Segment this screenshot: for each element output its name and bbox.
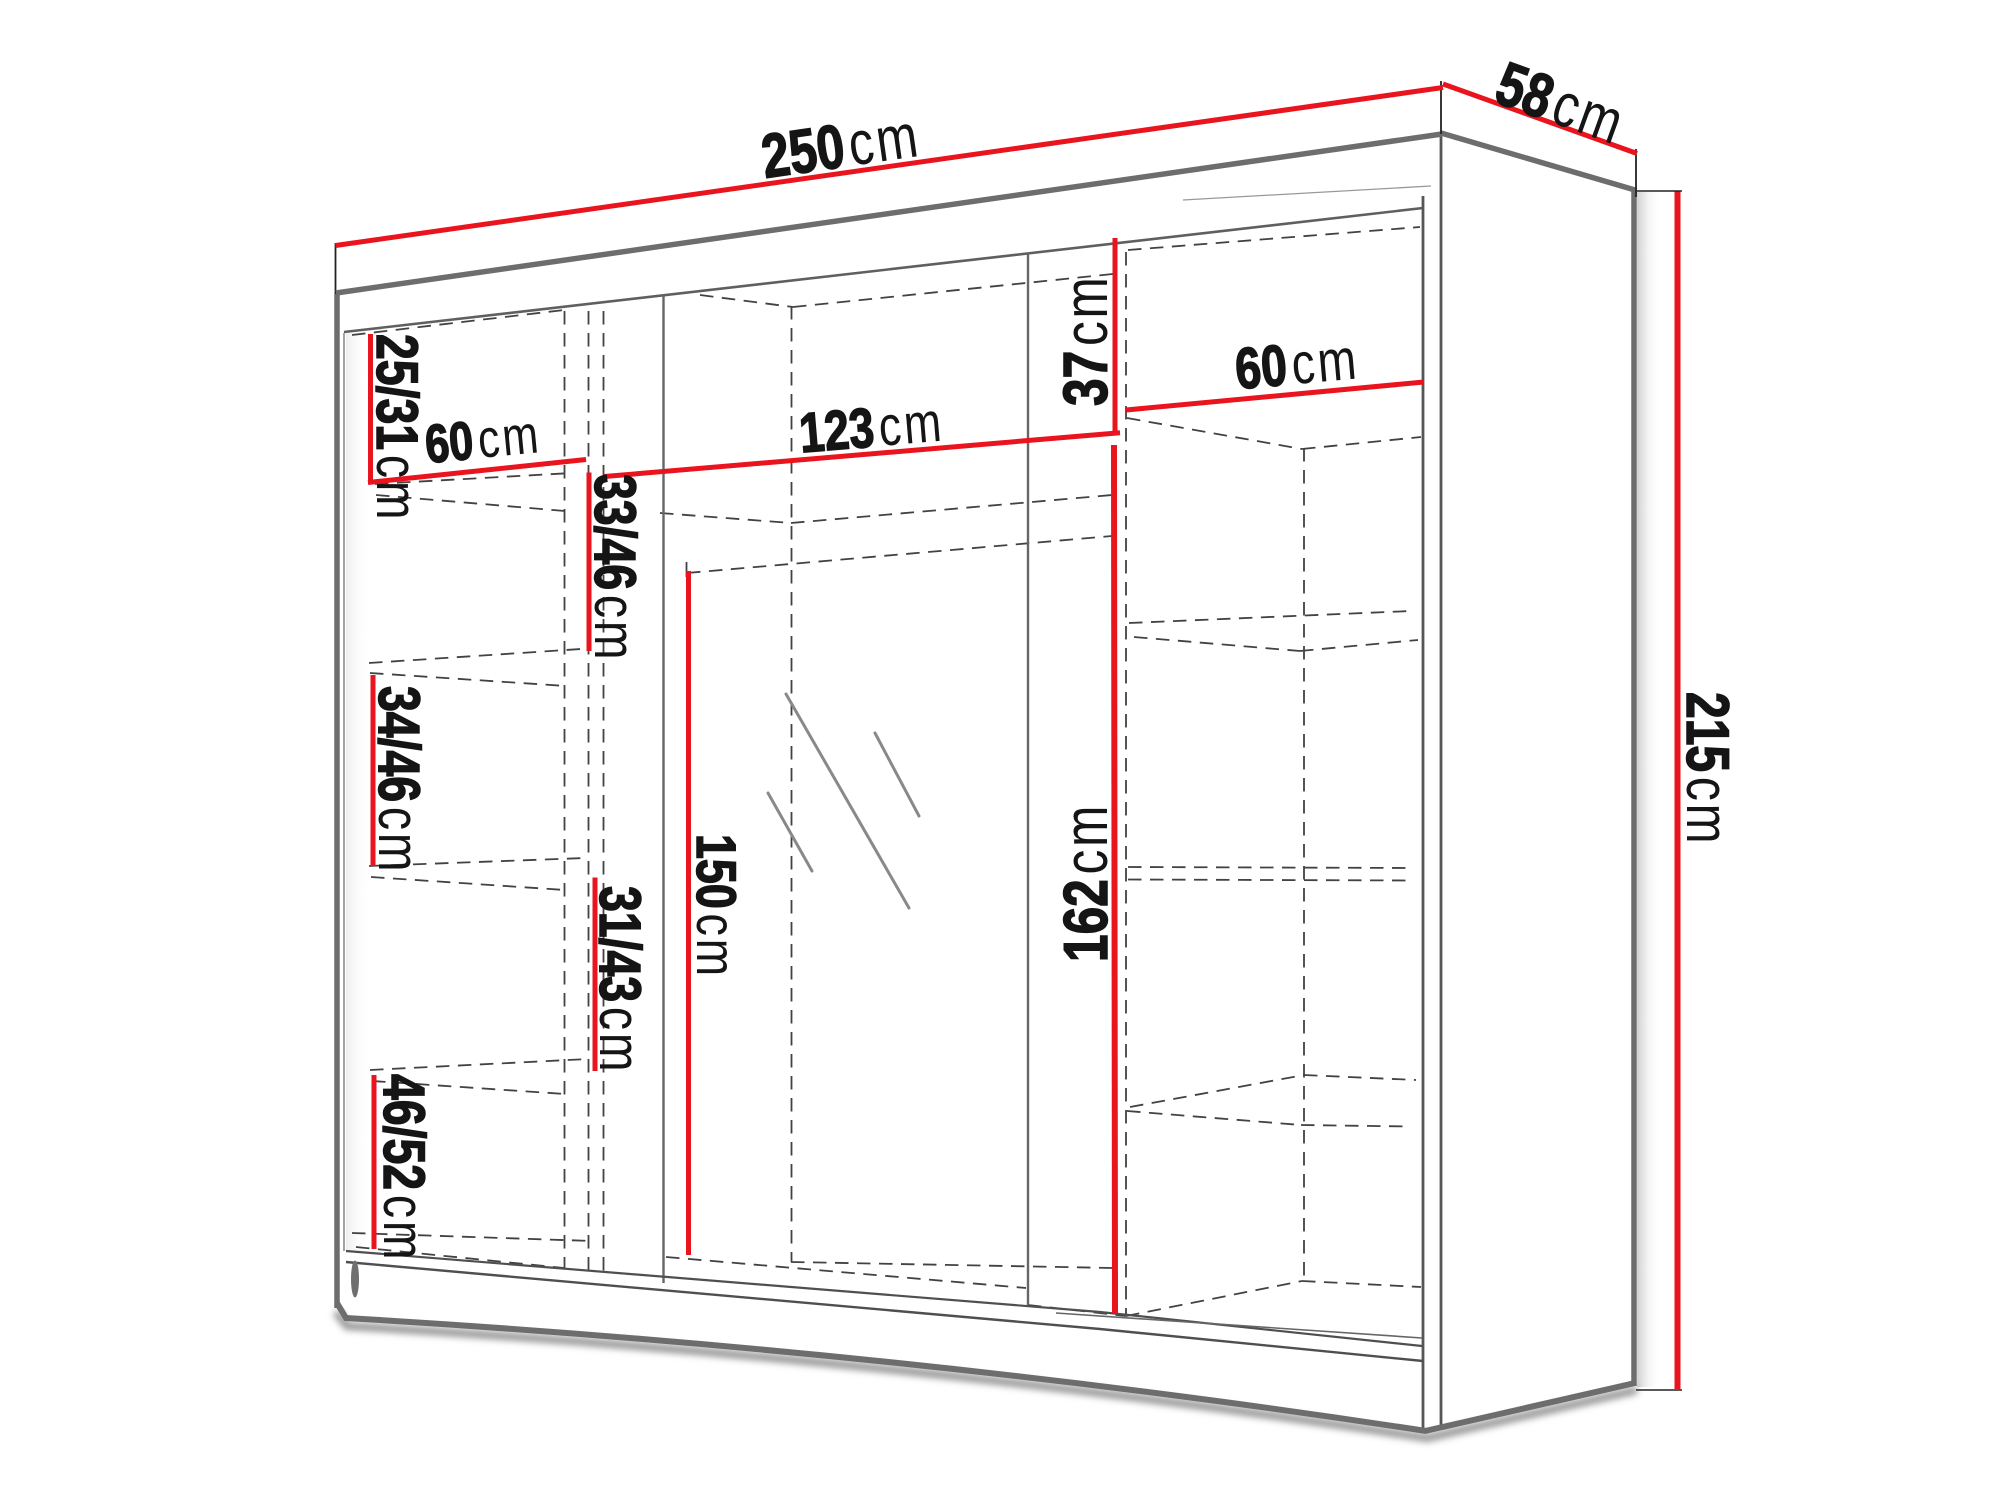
svg-text:250cm: 250cm: [757, 100, 924, 191]
svg-text:25/31cm: 25/31cm: [364, 334, 429, 522]
svg-text:215cm: 215cm: [1674, 692, 1741, 846]
svg-text:58cm: 58cm: [1488, 48, 1635, 158]
svg-text:46/52cm: 46/52cm: [371, 1074, 436, 1262]
svg-text:60cm: 60cm: [422, 405, 543, 475]
svg-text:162cm: 162cm: [1051, 803, 1121, 962]
svg-text:123cm: 123cm: [797, 390, 947, 465]
svg-text:60cm: 60cm: [1232, 326, 1361, 402]
svg-text:31/43cm: 31/43cm: [587, 886, 652, 1074]
svg-text:150cm: 150cm: [685, 834, 748, 979]
svg-text:37cm: 37cm: [1051, 274, 1121, 406]
svg-text:33/46cm: 33/46cm: [582, 474, 647, 662]
svg-text:34/46cm: 34/46cm: [366, 686, 431, 874]
